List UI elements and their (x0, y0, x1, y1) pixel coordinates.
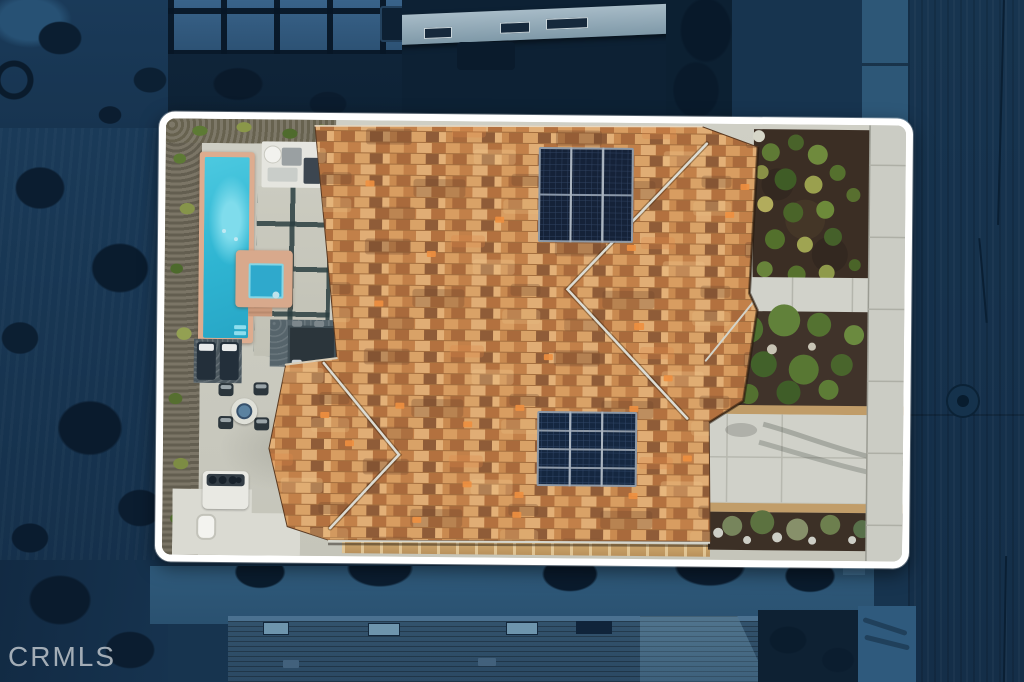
skylight (263, 622, 289, 635)
pavement-crack (1003, 556, 1007, 682)
neighbor-window (500, 22, 530, 34)
street (908, 0, 1024, 682)
neighbor-roof-light-slope (640, 616, 768, 682)
aerial-photo-scene: CRMLS (0, 0, 1024, 682)
tire-mark (864, 635, 910, 651)
neighbor-window (424, 27, 452, 39)
neighbor-yard-equipment (457, 42, 515, 70)
sidewalk (866, 125, 906, 561)
sidewalk-outside-top (862, 0, 912, 130)
tire-mark (862, 617, 907, 636)
tile-roof (268, 122, 759, 548)
neighbor-house-bottom (228, 616, 768, 682)
neighbor-driveway (858, 606, 916, 682)
skylight (368, 623, 400, 636)
crmls-watermark: CRMLS (8, 641, 116, 673)
roof-vent (283, 660, 299, 668)
neighbor-window (546, 17, 588, 30)
roof-vent (478, 658, 496, 666)
neighbor-solar-panel (576, 621, 612, 634)
pavement-crack (997, 0, 1005, 225)
highlight-frame (155, 111, 913, 568)
scrubland-left (0, 128, 168, 568)
solar-array-lower (537, 411, 638, 487)
property-photo (162, 118, 906, 561)
manhole-cover (946, 384, 980, 418)
roof-and-yard-graphic (162, 118, 906, 561)
neighbor-hedge (666, 0, 732, 120)
neighbor-house-top (402, 0, 732, 128)
pavement-crack (978, 238, 987, 323)
neighbor-front-yard (758, 610, 868, 682)
neighbor-pergola (168, 0, 408, 56)
solar-array-upper (538, 147, 634, 243)
skylight (506, 622, 538, 635)
